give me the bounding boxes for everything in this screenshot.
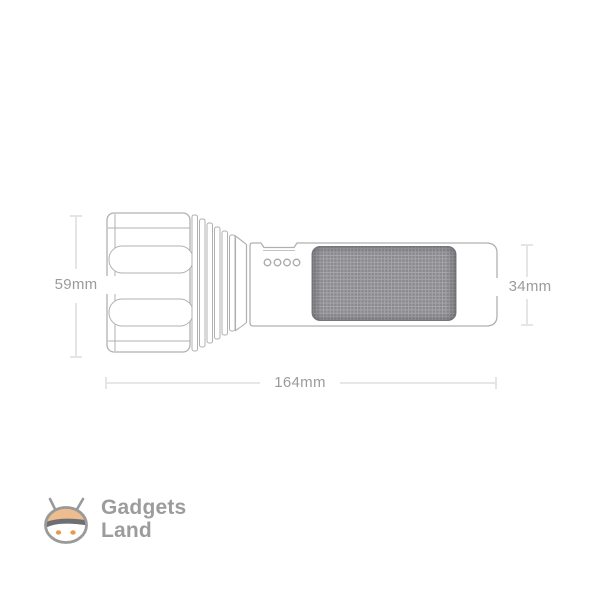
- mascot-eye-left: [56, 530, 61, 534]
- flashlight-grip: [312, 247, 456, 321]
- brand-name-line2: Land: [101, 519, 186, 542]
- dimension-label-body-diameter: 34mm: [490, 278, 570, 296]
- mascot-eye-right: [70, 530, 75, 534]
- brand-logo: Gadgets Land: [42, 492, 186, 546]
- brand-name-line1: Gadgets: [101, 496, 186, 519]
- flashlight-head: [107, 213, 193, 352]
- brand-name: Gadgets Land: [101, 496, 186, 542]
- flashlight-neck: [236, 236, 247, 331]
- dimension-label-total-length: 164mm: [260, 374, 340, 392]
- product-image-canvas: 59mm 34mm 164mm Gadgets: [0, 0, 600, 600]
- gadgets-land-mascot-icon: [42, 492, 92, 546]
- dimension-label-head-diameter: 59mm: [36, 276, 116, 294]
- flashlight-cooling-fins: [192, 215, 235, 351]
